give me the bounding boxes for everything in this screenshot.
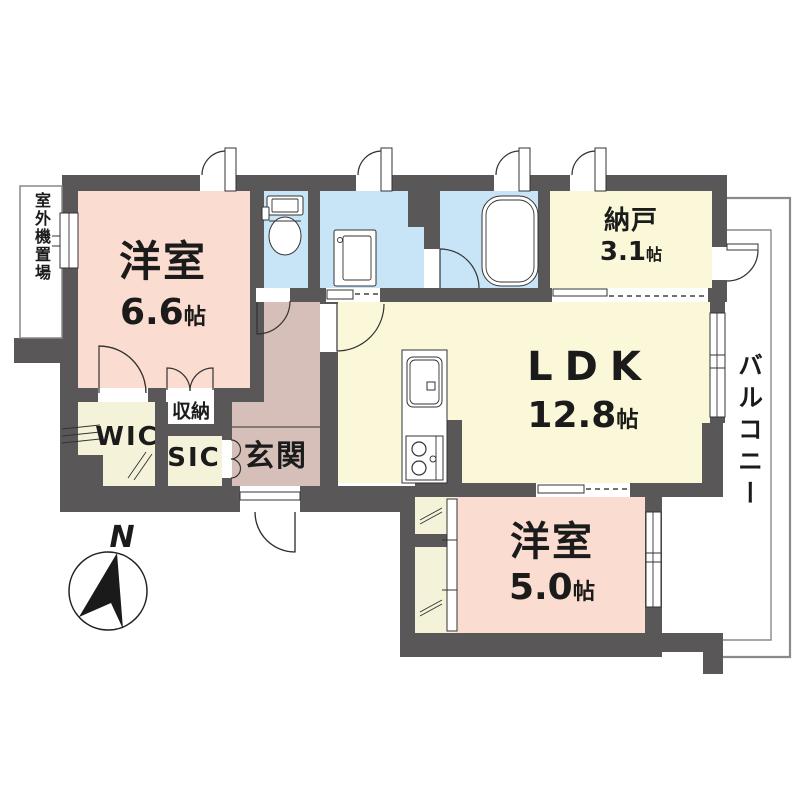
door-bedroom1-top bbox=[200, 148, 236, 191]
bedroom2-sliding-door bbox=[536, 483, 630, 497]
wic-label: WIC bbox=[95, 424, 158, 450]
entrance-door bbox=[240, 486, 300, 552]
outdoor-unit-label: 室外機置場 bbox=[33, 192, 49, 282]
floorplan: 洋室 6.6帖 LDK 12.8帖 納戸 3.1帖 洋室 5.0帖 玄関 WIC… bbox=[0, 0, 800, 800]
storeroom-name: 納戸 bbox=[604, 208, 658, 234]
ldk-right-window bbox=[710, 313, 725, 417]
north-arrow bbox=[79, 553, 123, 629]
balcony-label: バルコニー bbox=[737, 352, 762, 512]
compass-icon bbox=[69, 552, 147, 630]
bedroom1-floor bbox=[78, 191, 250, 388]
bedroom2-floor bbox=[457, 497, 645, 633]
bedroom1-size: 6.6帖 bbox=[120, 295, 206, 331]
storeroom-balcony-door bbox=[712, 244, 758, 281]
ldk-name: LDK bbox=[527, 347, 653, 387]
ldk-size: 12.8帖 bbox=[527, 398, 638, 434]
washroom-sliding-door bbox=[326, 288, 380, 302]
corridor-floor bbox=[264, 302, 320, 402]
door-storeroom-top bbox=[570, 148, 606, 191]
door-bathroom-top bbox=[494, 148, 530, 191]
kitchen-stove-icon bbox=[406, 436, 443, 480]
bathtub-icon bbox=[482, 196, 538, 286]
ldk-size-value: 12.8 bbox=[527, 395, 616, 436]
storeroom-size-value: 3.1 bbox=[600, 237, 646, 267]
bedroom1-size-unit: 帖 bbox=[184, 304, 206, 330]
bedroom2-size-value: 5.0 bbox=[509, 567, 573, 608]
washbasin-icon bbox=[334, 230, 376, 286]
storeroom-size-unit: 帖 bbox=[646, 245, 662, 264]
kitchen-sink-icon bbox=[407, 357, 442, 407]
door-washroom-top bbox=[356, 148, 392, 191]
closet-label: 収納 bbox=[172, 403, 210, 422]
bedroom1-name: 洋室 bbox=[119, 241, 207, 283]
floorplan-drawing bbox=[0, 0, 800, 800]
bedroom2-right-window bbox=[646, 512, 661, 607]
bedroom2-size: 5.0帖 bbox=[509, 570, 595, 606]
storeroom-sliding-door bbox=[552, 288, 708, 302]
storeroom-size: 3.1帖 bbox=[600, 239, 662, 265]
ldk-size-unit: 帖 bbox=[616, 407, 638, 433]
sic-label: SIC bbox=[167, 445, 220, 471]
north-label: N bbox=[109, 523, 134, 553]
bedroom1-size-value: 6.6 bbox=[120, 292, 184, 333]
bedroom2-name: 洋室 bbox=[510, 522, 594, 562]
entrance-label: 玄関 bbox=[244, 442, 308, 472]
bedroom2-size-unit: 帖 bbox=[573, 579, 595, 605]
ldk-floor bbox=[338, 302, 710, 483]
kitchen-counter bbox=[402, 350, 447, 483]
